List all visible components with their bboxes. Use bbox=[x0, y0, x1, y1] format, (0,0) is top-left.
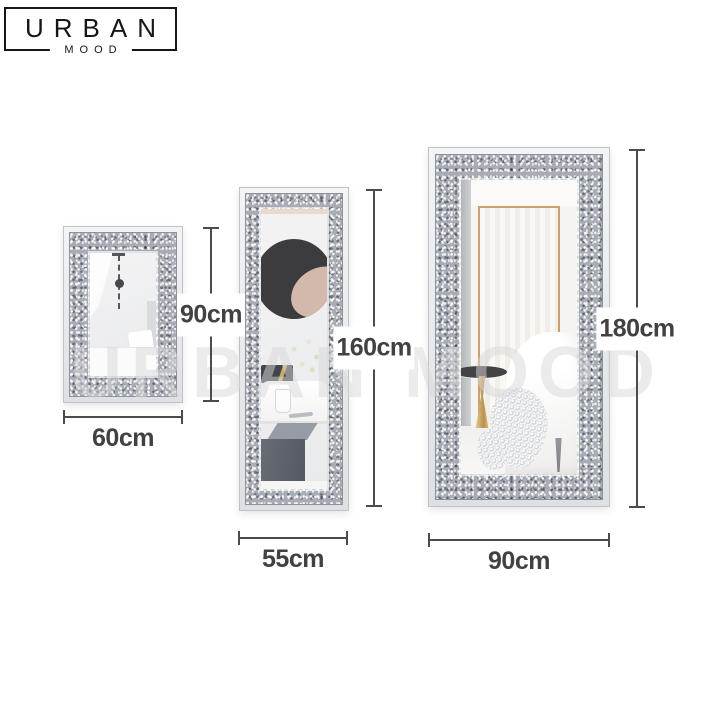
product-dimension-diagram: URBAN MOOD URBAN MOOD bbox=[0, 0, 720, 720]
brand-subname: MOOD bbox=[49, 42, 131, 58]
width-label-small: 60cm bbox=[92, 424, 154, 453]
width-dimension-medium: 55cm bbox=[238, 537, 348, 539]
window-light-reflection bbox=[90, 253, 130, 339]
height-label-large: 180cm bbox=[596, 307, 677, 350]
floor-reflection bbox=[261, 481, 327, 489]
width-label-medium: 55cm bbox=[262, 545, 324, 574]
cornice-reflection bbox=[261, 209, 327, 214]
height-label-medium: 160cm bbox=[333, 327, 414, 370]
pendulum-clock-dot bbox=[115, 279, 124, 288]
mirror-glass bbox=[90, 253, 156, 376]
glass-vase-reflection bbox=[275, 389, 291, 413]
ottoman-top-face bbox=[267, 423, 318, 440]
round-wall-art bbox=[261, 239, 327, 319]
mirror-large bbox=[428, 147, 610, 507]
brand-name: URBAN bbox=[6, 13, 175, 43]
width-dimension-small: 60cm bbox=[63, 416, 183, 418]
brand-logo: URBAN MOOD bbox=[4, 7, 177, 51]
gold-trim-vertical-left bbox=[478, 206, 480, 426]
ottoman-cube-reflection bbox=[261, 423, 309, 481]
ceiling-reflection bbox=[461, 180, 577, 206]
height-dimension-medium: 160cm bbox=[373, 189, 375, 507]
mirror-glass bbox=[461, 180, 577, 474]
mirror-glass bbox=[261, 209, 327, 489]
height-dimension-small: 90cm bbox=[210, 227, 212, 402]
gold-trim-vertical-right bbox=[558, 206, 560, 338]
width-label-large: 90cm bbox=[488, 547, 550, 576]
mirror-small bbox=[63, 226, 183, 403]
height-label-small: 90cm bbox=[177, 293, 245, 336]
width-dimension-large: 90cm bbox=[428, 539, 610, 541]
height-dimension-large: 180cm bbox=[636, 149, 638, 508]
wall-art-blush-shape bbox=[281, 256, 327, 319]
ottoman-front-face bbox=[261, 439, 305, 481]
gold-trim-horizontal bbox=[478, 206, 560, 208]
bed-reflection bbox=[90, 347, 156, 376]
